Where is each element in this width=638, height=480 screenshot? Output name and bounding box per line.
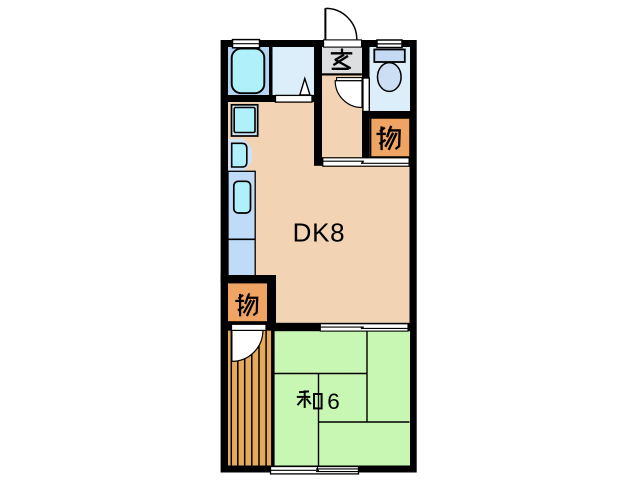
svg-text:6: 6: [327, 389, 340, 414]
svg-text:DK8: DK8: [293, 217, 346, 247]
